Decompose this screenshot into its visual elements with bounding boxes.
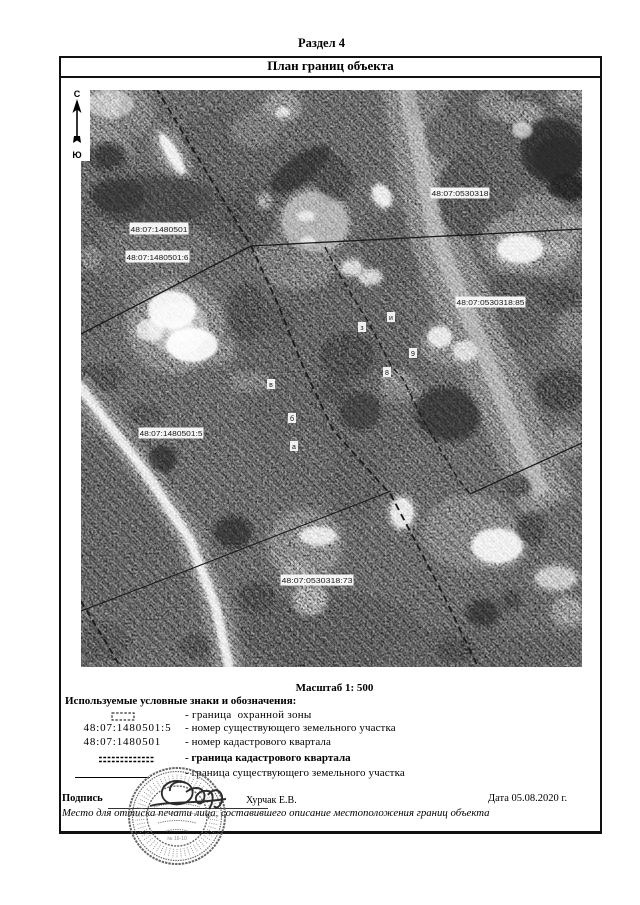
svg-text:48:07:0530318:73: 48:07:0530318:73 (282, 576, 353, 585)
svg-text:48:07:0530318: 48:07:0530318 (432, 189, 489, 198)
svg-text:и: и (389, 315, 393, 322)
svg-text:С: С (74, 89, 81, 99)
svg-text:48:07:1480501:6: 48:07:1480501:6 (127, 253, 189, 262)
svg-text:48:07:1480501:5: 48:07:1480501:5 (140, 429, 203, 438)
svg-text:8: 8 (385, 370, 389, 377)
svg-text:48:07:0530318:85: 48:07:0530318:85 (457, 298, 525, 307)
svg-text:№ 16-10: № 16-10 (167, 836, 187, 842)
svg-text:з: з (360, 325, 363, 332)
svg-text:в: в (269, 382, 273, 389)
svg-text:а: а (292, 444, 296, 451)
svg-text:9: 9 (411, 351, 415, 358)
svg-text:48:07:1480501: 48:07:1480501 (131, 225, 188, 234)
svg-text:б: б (290, 415, 294, 423)
